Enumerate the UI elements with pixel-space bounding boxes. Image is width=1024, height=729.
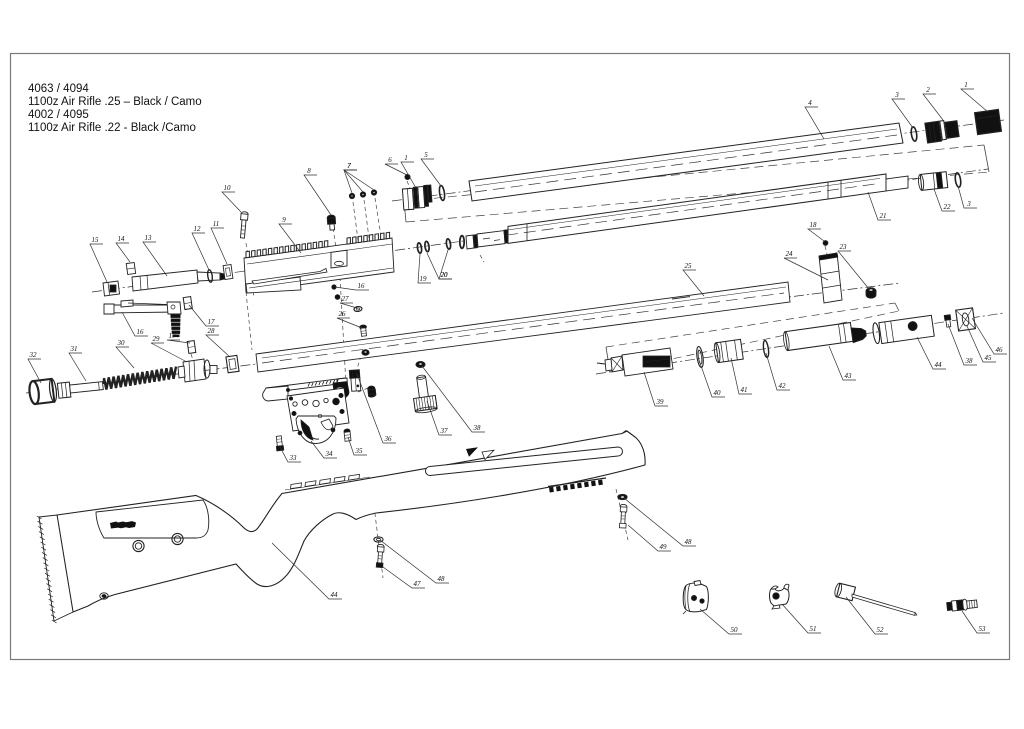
- svg-text:8: 8: [307, 167, 311, 175]
- svg-text:47: 47: [414, 580, 422, 588]
- svg-text:23: 23: [840, 243, 848, 251]
- svg-text:20: 20: [441, 271, 449, 279]
- svg-text:34: 34: [325, 450, 334, 458]
- svg-text:17: 17: [208, 318, 216, 326]
- svg-text:21: 21: [880, 212, 887, 220]
- svg-text:28: 28: [208, 327, 216, 335]
- svg-text:31: 31: [70, 345, 78, 353]
- svg-text:50: 50: [731, 626, 739, 634]
- svg-text:41: 41: [741, 386, 748, 394]
- svg-text:37: 37: [440, 427, 449, 435]
- svg-text:44: 44: [935, 361, 943, 369]
- svg-text:22: 22: [944, 203, 952, 211]
- svg-text:3: 3: [894, 91, 899, 99]
- svg-text:30: 30: [117, 339, 126, 347]
- svg-text:24: 24: [786, 250, 794, 258]
- svg-text:4002 / 4095: 4002 / 4095: [28, 109, 89, 121]
- svg-text:29: 29: [153, 335, 161, 343]
- svg-text:12: 12: [194, 225, 202, 233]
- svg-text:27: 27: [342, 295, 350, 303]
- svg-text:4: 4: [808, 99, 812, 107]
- svg-text:53: 53: [979, 625, 987, 633]
- svg-text:39: 39: [656, 398, 665, 406]
- svg-text:2: 2: [926, 86, 930, 94]
- svg-text:16: 16: [358, 282, 366, 290]
- svg-text:19: 19: [420, 275, 428, 283]
- svg-text:1: 1: [404, 154, 408, 162]
- svg-text:13: 13: [145, 234, 153, 242]
- svg-text:40: 40: [714, 389, 722, 397]
- svg-text:38: 38: [473, 424, 482, 432]
- svg-text:15: 15: [92, 236, 100, 244]
- svg-text:17: 17: [169, 332, 177, 340]
- svg-text:48: 48: [438, 575, 446, 583]
- svg-text:18: 18: [810, 221, 818, 229]
- svg-text:6: 6: [388, 156, 392, 164]
- svg-text:5: 5: [424, 151, 428, 159]
- svg-text:36: 36: [384, 435, 393, 443]
- svg-text:4063 / 4094: 4063 / 4094: [28, 83, 89, 95]
- svg-text:1: 1: [964, 81, 968, 89]
- svg-text:35: 35: [355, 447, 364, 455]
- svg-text:11: 11: [213, 220, 219, 228]
- svg-text:42: 42: [779, 382, 787, 390]
- svg-text:3: 3: [966, 200, 971, 208]
- svg-text:7: 7: [347, 162, 351, 170]
- svg-text:52: 52: [877, 626, 885, 634]
- svg-text:43: 43: [845, 372, 853, 380]
- svg-text:14: 14: [118, 235, 126, 243]
- svg-text:1100z Air Rifle .22 - Black /C: 1100z Air Rifle .22 - Black /Camo: [28, 122, 196, 134]
- svg-text:44: 44: [331, 591, 339, 599]
- svg-text:9: 9: [282, 216, 286, 224]
- svg-text:25: 25: [685, 262, 693, 270]
- svg-text:45: 45: [985, 354, 993, 362]
- svg-text:32: 32: [29, 351, 38, 359]
- svg-text:26: 26: [339, 310, 347, 318]
- svg-text:51: 51: [810, 625, 817, 633]
- svg-text:38: 38: [965, 357, 974, 365]
- svg-text:49: 49: [660, 543, 668, 551]
- svg-text:46: 46: [996, 346, 1004, 354]
- svg-text:10: 10: [224, 184, 232, 192]
- svg-text:16: 16: [137, 328, 145, 336]
- svg-text:33: 33: [289, 454, 298, 462]
- svg-text:1100z Air Rifle .25 – Black /: 1100z Air Rifle .25 – Black / Camo: [28, 96, 202, 108]
- svg-text:48: 48: [685, 538, 693, 546]
